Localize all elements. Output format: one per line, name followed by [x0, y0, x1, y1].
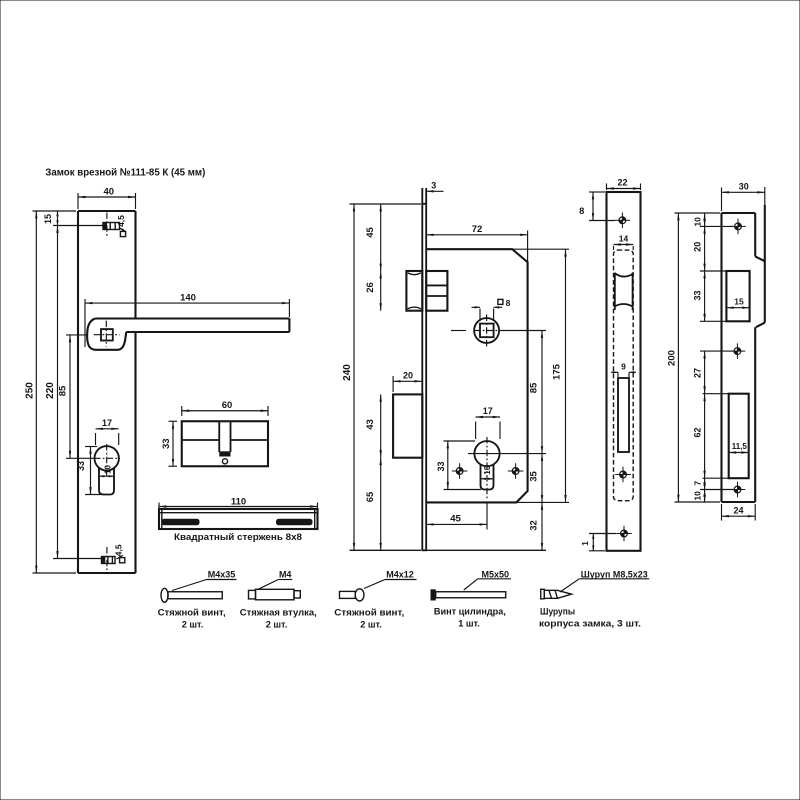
- svg-text:140: 140: [180, 292, 196, 303]
- svg-text:М4: М4: [279, 569, 292, 579]
- svg-text:200: 200: [666, 350, 677, 366]
- svg-text:43: 43: [365, 419, 376, 430]
- svg-text:4,5: 4,5: [116, 215, 126, 227]
- svg-text:35: 35: [529, 471, 540, 482]
- svg-text:40: 40: [104, 186, 115, 197]
- svg-text:175: 175: [552, 363, 563, 380]
- svg-text:Стяжная втулка,: Стяжная втулка,: [240, 608, 317, 618]
- svg-text:1: 1: [580, 541, 590, 546]
- svg-text:240: 240: [342, 364, 353, 381]
- svg-text:33: 33: [436, 461, 446, 471]
- svg-text:27: 27: [692, 368, 702, 378]
- svg-text:2 шт.: 2 шт.: [182, 619, 204, 629]
- svg-text:32: 32: [529, 520, 540, 531]
- svg-text:8: 8: [579, 206, 584, 216]
- svg-text:45: 45: [450, 513, 461, 524]
- svg-text:15: 15: [43, 214, 53, 224]
- svg-text:Шуруп М8,5х23: Шуруп М8,5х23: [581, 569, 648, 579]
- svg-text:Шурупы: Шурупы: [540, 606, 575, 616]
- svg-text:Квадратный стержень 8х8: Квадратный стержень 8х8: [174, 532, 302, 542]
- svg-text:85: 85: [529, 382, 540, 393]
- svg-text:Стяжной винт,: Стяжной винт,: [334, 608, 404, 618]
- svg-text:20: 20: [692, 242, 702, 252]
- svg-text:10: 10: [483, 465, 492, 474]
- svg-text:Стяжной винт,: Стяжной винт,: [158, 608, 226, 618]
- svg-text:22: 22: [617, 177, 627, 187]
- svg-text:М4х35: М4х35: [208, 569, 236, 579]
- svg-text:33: 33: [692, 290, 702, 300]
- svg-text:62: 62: [692, 427, 702, 437]
- svg-text:17: 17: [483, 406, 493, 416]
- svg-text:24: 24: [733, 505, 743, 515]
- svg-text:8: 8: [506, 298, 511, 308]
- svg-text:М5х50: М5х50: [481, 569, 509, 579]
- svg-text:3: 3: [431, 180, 436, 190]
- svg-text:220: 220: [45, 382, 56, 399]
- svg-text:1 шт.: 1 шт.: [458, 619, 480, 629]
- svg-text:М4х12: М4х12: [386, 569, 414, 579]
- svg-text:корпуса замка, 3 шт.: корпуса замка, 3 шт.: [539, 619, 641, 629]
- svg-text:15: 15: [734, 297, 744, 307]
- svg-text:7: 7: [692, 481, 702, 486]
- svg-text:20: 20: [403, 370, 413, 380]
- svg-text:2 шт.: 2 шт.: [266, 619, 288, 629]
- svg-text:33: 33: [76, 461, 86, 471]
- svg-text:2 шт.: 2 шт.: [360, 619, 382, 629]
- svg-text:30: 30: [739, 181, 749, 191]
- svg-text:45: 45: [365, 227, 376, 238]
- svg-text:17: 17: [102, 418, 112, 428]
- svg-text:65: 65: [365, 491, 376, 502]
- svg-text:33: 33: [161, 438, 172, 449]
- svg-text:26: 26: [365, 282, 376, 293]
- svg-text:72: 72: [472, 224, 483, 235]
- svg-text:10: 10: [692, 491, 702, 501]
- svg-text:85: 85: [58, 385, 69, 396]
- svg-text:10: 10: [104, 465, 113, 474]
- svg-text:9: 9: [621, 361, 626, 371]
- svg-text:Замок врезной №111-85 К (45 мм: Замок врезной №111-85 К (45 мм): [45, 166, 205, 178]
- svg-text:Винт цилиндра,: Винт цилиндра,: [434, 606, 506, 616]
- svg-text:4,5: 4,5: [113, 544, 123, 556]
- svg-text:10: 10: [692, 217, 702, 227]
- svg-text:11,5: 11,5: [732, 442, 748, 451]
- svg-text:250: 250: [24, 382, 35, 399]
- svg-text:14: 14: [619, 233, 629, 243]
- svg-text:60: 60: [222, 400, 233, 411]
- svg-text:110: 110: [231, 497, 246, 508]
